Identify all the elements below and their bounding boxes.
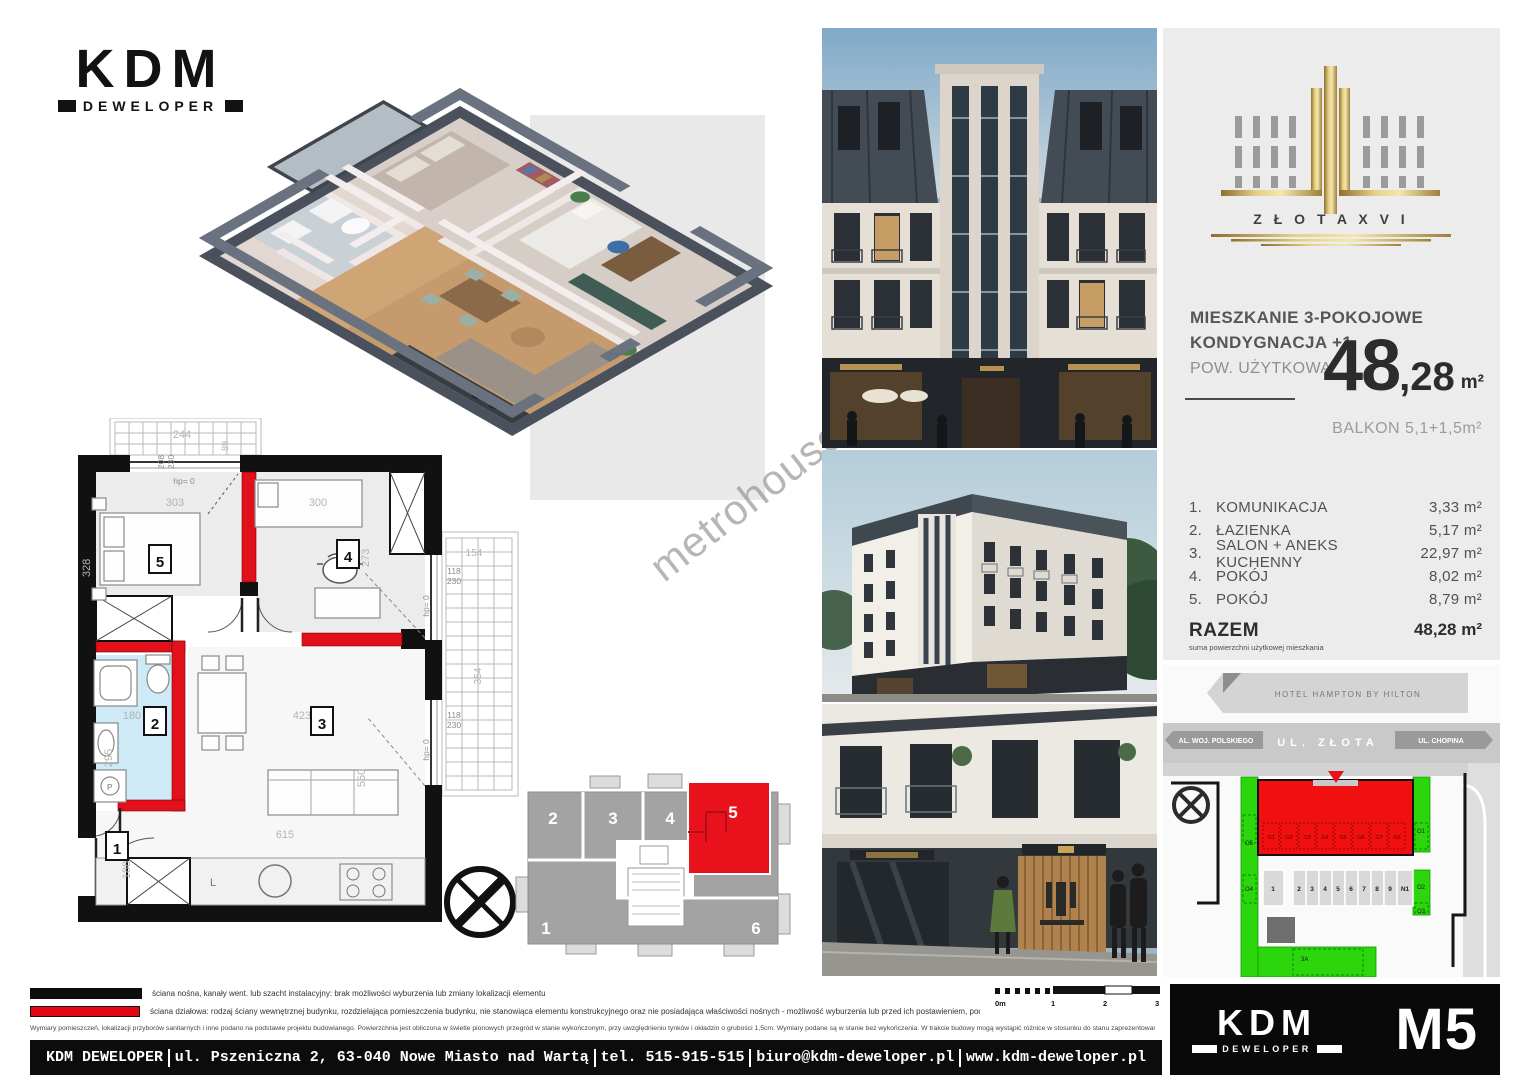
room-row: 4.POKÓJ8,02 m² [1189,565,1482,588]
dim-win-top-a: 208 [156,455,166,469]
room-number-4: 4 [344,549,353,566]
room-area: 8,02 m² [1429,568,1482,585]
area-unit: m² [1461,369,1484,398]
dim-salon-w: 423 [293,710,311,722]
legend: ściana nośna, kanały went. lub szacht in… [30,986,980,1032]
total-area: 48,28 m² [1414,620,1482,640]
zlota-xvi-logo: Z Ł O T A X V I [1163,28,1500,268]
area-underline [1185,398,1295,400]
building-renders [822,28,1157,976]
room-number-5: 5 [156,554,164,571]
room-name: POKÓJ [1216,591,1429,608]
unit-info-card: Z Ł O T A X V I MIESZKANIE 3-POKOJOWE KO… [1163,28,1500,660]
keyplan-unit-2: 2 [548,809,557,828]
dim-balc-r-h: 354 [473,667,484,684]
garage-label: G5 [1339,835,1346,841]
room-number-3: 3 [318,716,326,733]
area-int: 48 [1323,336,1399,397]
garage-label: G1 [1267,835,1274,841]
legend-line1: ściana nośna, kanały went. lub szacht in… [152,989,546,998]
logo-bar-left [58,100,76,112]
parking-label: 1 [1271,886,1275,893]
footer-divider [168,1049,170,1067]
keyplan-unit-6: 6 [751,919,760,938]
dim-win-top-b: 230 [166,455,176,469]
dim-bottom: 615 [276,829,294,841]
garage-label: G8 [1393,835,1400,841]
keyplan-unit-4: 4 [665,809,675,828]
legend-line2: ściana działowa: rodzaj ściany wewnętrzn… [150,1007,980,1016]
footer-divider [749,1049,751,1067]
dim-win-r1b: 230 [447,576,461,586]
room-row: 5.POKÓJ8,79 m² [1189,588,1482,611]
parking-label: 6 [1349,886,1353,893]
dim-room4-w: 300 [309,497,327,509]
garage-label: G4 [1321,835,1328,841]
parking-label: 5 [1336,886,1340,893]
footer-company: KDM DEWELOPER [46,1049,163,1066]
hotel-label: HOTEL HAMPTON BY HILTON [1275,690,1422,699]
room-area: 5,17 m² [1429,522,1482,539]
street-right: UL. CHOPINA [1418,738,1464,745]
street-center: UL. ZŁOTA [1277,737,1379,749]
room-area: 22,97 m² [1420,545,1482,562]
flyer-page: KDM DEWELOPER [0,0,1527,1080]
render-facade [822,28,1157,448]
footer-divider [959,1049,961,1067]
dim-win-r2a: 118 [447,710,461,720]
keyplan-unit5-highlight [688,782,770,874]
dim-hp-r1: hp= 0 [421,595,431,617]
project-name: Z Ł O T A X V I [1253,211,1408,227]
dim-hall-h: 188 [121,861,133,879]
dim-bath-w: 180 [123,710,141,722]
room-no: 3. [1189,545,1216,562]
render-entrance [822,704,1157,976]
room-area: 3,33 m² [1429,499,1482,516]
room-area: 8,79 m² [1429,591,1482,608]
room-row: 1.KOMUNIKACJA3,33 m² [1189,496,1482,519]
room-name: KOMUNIKACJA [1216,499,1429,516]
sitemap-building-highlight [1258,780,1413,855]
dim-balcony-w: 244 [173,429,191,441]
dim-win-r2b: 230 [447,720,461,730]
unit-code: M5 [1395,996,1478,1063]
map-compass-icon [1174,788,1208,822]
utility-building [1267,917,1295,943]
footer-email: biuro@kdm-deweloper.pl [756,1049,954,1066]
parking-label: 7 [1362,886,1366,893]
dim-bath-h: 295 [103,749,115,767]
area-dec: ,28 [1399,357,1455,397]
dim-room5-w: 303 [166,497,184,509]
room-number-2: 2 [151,716,159,733]
room-name: SALON + ANEKS KUCHENNY [1216,537,1420,571]
footer-website: www.kdm-deweloper.pl [966,1049,1146,1066]
scale-3: 3 [1155,999,1159,1008]
washer-icon: P [107,783,112,792]
plot-label-o1: O1 [1417,829,1426,835]
footer-divider [594,1049,596,1067]
compass-icon [447,869,513,935]
keyplan-unit-5: 5 [728,803,737,822]
room-no: 1. [1189,499,1216,516]
site-map: HOTEL HAMPTON BY HILTON AL. WOJ. POLSKIE… [1163,665,1500,977]
legend-red-swatch [30,1006,140,1017]
legend-black-swatch [30,988,142,999]
room-row: 3.SALON + ANEKS KUCHENNY22,97 m² [1189,542,1482,565]
dim-room4-h: 273 [360,549,372,567]
room-number-1: 1 [113,841,121,858]
plot-label-o3: O3 [1417,909,1426,915]
parking-label: 4 [1323,886,1327,893]
kitchen-l-label: L [210,877,216,889]
floor-key-plan: 2 3 4 5 1 6 [430,772,800,972]
render-corner [822,450,1157,702]
logo-bar-left [1192,1045,1217,1053]
dim-hp-r2: hp= 0 [421,739,431,761]
dim-hp-top: hp= 0 [173,476,195,486]
unit-code-box: KDM DEWELOPER M5 [1170,984,1500,1075]
room-list: 1.KOMUNIKACJA3,33 m² 2.ŁAZIENKA5,17 m² 3… [1189,496,1482,611]
footer-bar: KDM DEWELOPER ul. Pszeniczna 2, 63-040 N… [30,1040,1162,1075]
dim-salon-h: 550 [356,769,368,787]
keyplan-unit-1: 1 [541,919,550,938]
footer-phone: tel. 515-915-515 [600,1049,744,1066]
balcony-area: BALKON 5,1+1,5m² [1332,420,1482,438]
street-left: AL. WOJ. POLSKIEGO [1179,738,1254,745]
garage-label: G7 [1375,835,1382,841]
scale-0: 0m [995,999,1006,1008]
garage-label: G2 [1285,835,1292,841]
keyplan-unit-3: 3 [608,809,617,828]
dim-balcony-d: 89 [220,441,230,451]
kdm-logo-footer-sub: DEWELOPER [1222,1044,1312,1054]
total-label: RAZEM [1189,620,1324,642]
total-row: RAZEM suma powierzchni użytkowej mieszka… [1189,620,1482,652]
legend-disclaimer: Wymiary pomieszczeń, lokalizacji przybor… [30,1025,1155,1032]
kdm-logo-footer: KDM DEWELOPER [1192,1005,1342,1054]
unit-area-value: 48,28m² [1323,336,1484,397]
plot-label-o4: O4 [1245,887,1254,893]
plot-label-o2: O2 [1417,885,1426,891]
room-no: 4. [1189,568,1216,585]
scale-2: 2 [1103,999,1107,1008]
plot-label-3a: 3A [1301,957,1308,963]
parking-label: 8 [1375,886,1379,893]
garage-label: G3 [1303,835,1310,841]
plot-label-o5: O5 [1245,841,1254,847]
parking-label: 9 [1388,886,1392,893]
scale-bar: 0m 1 2 3 [995,984,1165,1012]
dim-balc-r-w: 154 [466,548,483,559]
parking-label: N1 [1401,886,1410,893]
room-no: 5. [1189,591,1216,608]
kdm-logo-footer-text: KDM [1192,1005,1342,1041]
footer-address: ul. Pszeniczna 2, 63-040 Nowe Miasto nad… [175,1049,589,1066]
dim-room5-h: 328 [81,559,93,577]
parking-label: 2 [1297,886,1301,893]
room-no: 2. [1189,522,1216,539]
parking-label: 3 [1310,886,1314,893]
total-sub: suma powierzchni użytkowej mieszkania [1189,643,1324,652]
dim-win-r1a: 118 [447,566,461,576]
logo-bar-right [1317,1045,1342,1053]
garage-label: G6 [1357,835,1364,841]
scale-1: 1 [1051,999,1055,1008]
room-name: POKÓJ [1216,568,1429,585]
